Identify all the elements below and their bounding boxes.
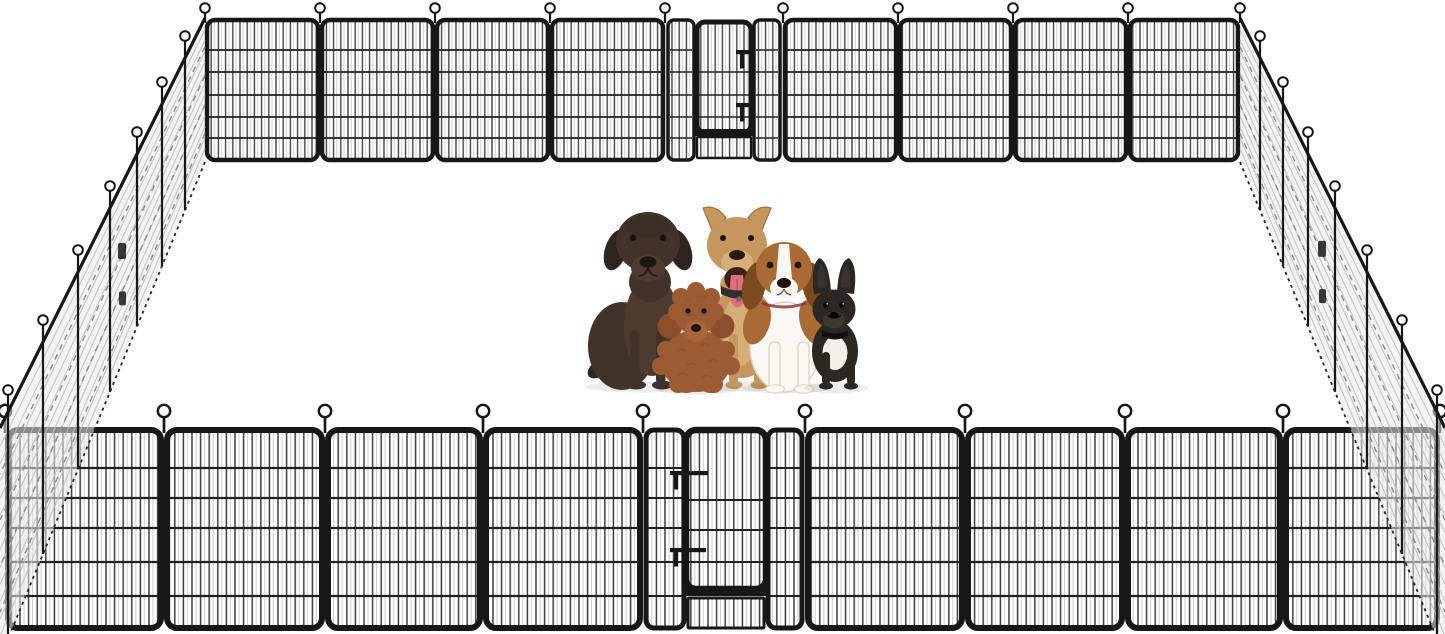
gate-bottom-rail <box>694 129 754 136</box>
dog-paw <box>676 383 696 393</box>
ground-stake-loop <box>959 405 971 433</box>
dog-eye <box>748 235 754 241</box>
stake-loop-icon <box>200 3 210 13</box>
dog-nose <box>729 250 745 260</box>
gate-latch <box>119 291 126 305</box>
stake-loop-icon <box>1235 3 1245 13</box>
dog-eye <box>839 302 845 308</box>
fence-panel <box>207 20 318 160</box>
stake-loop-icon <box>1277 405 1289 417</box>
fence-panel <box>1128 430 1280 628</box>
dog-eye <box>630 235 636 241</box>
stake-loop-icon <box>319 405 331 417</box>
stake-loop-icon <box>660 3 670 13</box>
dog-shadow <box>804 383 868 394</box>
stake-loop-icon <box>1397 315 1407 325</box>
stake-loop-icon <box>38 315 48 325</box>
ground-stake-loop <box>660 3 670 23</box>
dog-collar-tag <box>736 296 741 301</box>
dog-leg <box>847 352 855 385</box>
dog-paw <box>701 383 721 393</box>
stake-loop-icon <box>778 3 788 13</box>
fence-panel <box>322 20 433 160</box>
stake-loop-icon <box>1123 3 1133 13</box>
dog-nose <box>777 278 791 288</box>
dog-eye <box>660 235 666 241</box>
gate-side-strip <box>646 430 684 628</box>
stake-loop-icon <box>105 181 115 191</box>
stake-loop-icon <box>545 3 555 13</box>
dog-leg <box>769 342 780 390</box>
ground-stake-loop <box>1008 3 1018 23</box>
gate-latch <box>1319 289 1326 303</box>
stake-loop-icon <box>1119 405 1131 417</box>
ground-stake-loop <box>319 405 331 433</box>
playpen-scene <box>0 0 1445 634</box>
gate-side-strip <box>668 20 694 160</box>
dog-nose <box>640 257 657 268</box>
ground-stake-loop <box>315 3 325 23</box>
fence-panel <box>1015 20 1126 160</box>
back-fence <box>200 3 1245 160</box>
dog-eye <box>720 235 726 241</box>
stake-loop-icon <box>959 405 971 417</box>
stake-loop-icon <box>1255 31 1265 41</box>
stake-loop-icon <box>477 405 489 417</box>
dog-fluff <box>717 341 735 359</box>
ground-stake-loop <box>430 3 440 23</box>
dog-fluff <box>706 303 724 321</box>
stake-loop-icon <box>637 405 649 417</box>
ground-stake-loop <box>1277 405 1289 433</box>
fence-panel <box>486 430 640 628</box>
dog-eye <box>701 308 706 313</box>
dog-eye <box>767 262 774 269</box>
fence-panel <box>167 430 322 628</box>
dog-leg <box>798 342 809 390</box>
dog-eye <box>795 262 802 269</box>
stake-loop-icon <box>1278 77 1288 87</box>
dog-paw <box>766 385 785 393</box>
stake-loop-icon <box>3 385 13 395</box>
dog-eye-glint <box>842 303 844 305</box>
ground-stake-loop <box>799 405 811 433</box>
stake-loop-icon <box>132 127 142 137</box>
ground-stake-loop <box>893 3 903 23</box>
stake-loop-icon <box>1303 127 1313 137</box>
stake-loop-icon <box>430 3 440 13</box>
dog-leg <box>822 352 830 385</box>
dog-paw <box>819 382 833 389</box>
stake-loop-icon <box>315 3 325 13</box>
gate-latch <box>118 243 126 259</box>
fence-panel <box>328 430 480 628</box>
gate-side-strip <box>768 430 802 628</box>
ground-stake-loop <box>545 3 555 23</box>
ground-stake-loop <box>1119 405 1131 433</box>
dogs-group <box>584 207 868 394</box>
gate-latch <box>1318 241 1326 257</box>
dog-fluff <box>657 341 675 359</box>
stake-loop-icon <box>180 31 190 41</box>
ground-stake-loop <box>1123 3 1133 23</box>
fence-panel <box>968 430 1122 628</box>
dog-fluff <box>652 357 670 375</box>
stake-loop-icon <box>1362 245 1372 255</box>
dog-eye <box>685 308 690 313</box>
dog-fluff <box>722 357 740 375</box>
gate-bottom-mesh <box>688 598 764 628</box>
gate-bottom-mesh <box>697 137 751 158</box>
fence-panel <box>552 20 663 160</box>
stake-loop-icon <box>1330 181 1340 191</box>
dog-paw <box>626 381 646 390</box>
dog-fluff <box>668 303 686 321</box>
ground-stake-loop <box>778 3 788 23</box>
ground-stake-loop <box>158 405 170 433</box>
dog-leg <box>705 350 717 386</box>
stake-loop-icon <box>73 245 83 255</box>
fence-panel <box>785 20 896 160</box>
back-gate <box>668 20 780 160</box>
dog-eye <box>823 302 829 308</box>
front-fence <box>0 405 1445 628</box>
stake-loop-icon <box>799 405 811 417</box>
gate-bottom-rail <box>683 586 769 596</box>
stake-loop-icon <box>158 405 170 417</box>
dog-eye-glint <box>826 303 828 305</box>
dog-nose <box>691 324 701 332</box>
ground-stake-loop <box>477 405 489 433</box>
fence-panel <box>437 20 548 160</box>
fence-panel <box>900 20 1011 160</box>
stake-loop-icon <box>1008 3 1018 13</box>
ground-stake-loop <box>637 405 649 433</box>
gate-side-strip <box>754 20 780 160</box>
stake-loop-icon <box>893 3 903 13</box>
stake-loop-icon <box>157 77 167 87</box>
dog-leg <box>630 330 640 384</box>
gate-door <box>686 430 766 589</box>
stake-loop-icon <box>1432 385 1442 395</box>
fence-panel <box>1130 20 1238 160</box>
dog-playpen-product-image <box>0 0 1445 634</box>
dog-paw <box>844 382 858 389</box>
dog-brow <box>625 216 671 238</box>
fence-panel <box>808 430 962 628</box>
front-gate <box>646 430 802 628</box>
dog-leg <box>680 350 692 386</box>
